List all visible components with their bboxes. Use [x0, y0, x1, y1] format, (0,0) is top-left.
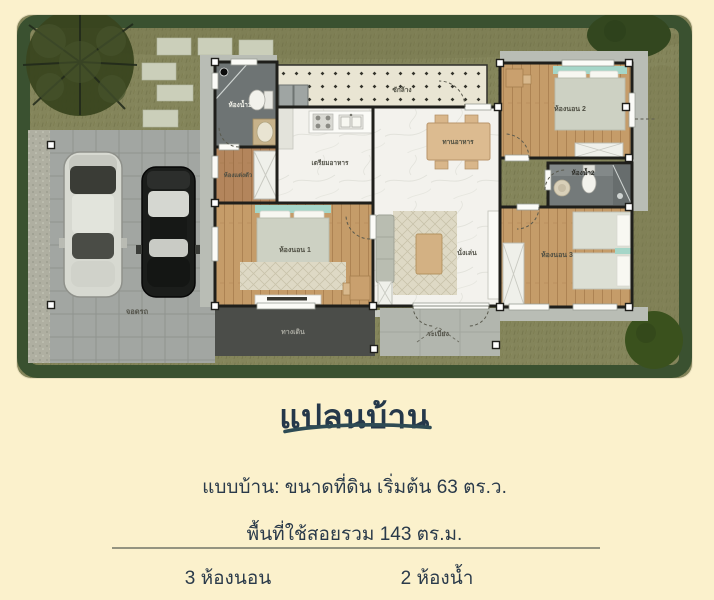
floor-plan-image: ห้องน้ำ1 ห้องแต่งตัว ซักล้าง เตรียมอาหาร…: [17, 15, 692, 378]
label-walkway: ทางเดิน: [281, 328, 305, 336]
label-bedroom-3: ห้องนอน 3: [541, 250, 573, 259]
car-black: [136, 167, 201, 297]
label-laundry: ซักล้าง: [392, 85, 411, 94]
car-silver: [59, 152, 127, 297]
room-bedroom-1: [215, 203, 373, 306]
divider-line: [112, 547, 600, 549]
label-kitchen: เตรียมอาหาร: [311, 159, 349, 167]
usable-area-text: พื้นที่ใช้สอยรวม 143 ตร.ม.: [17, 519, 692, 549]
title-underline: [282, 421, 434, 435]
land-size-text: แบบบ้าน: ขนาดที่ดิน เริ่มต้น 63 ตร.ว.: [17, 472, 692, 502]
bedrooms-count: 3 ห้องนอน: [128, 563, 328, 593]
page: ห้องน้ำ1 ห้องแต่งตัว ซักล้าง เตรียมอาหาร…: [0, 0, 714, 600]
label-terrace: ระเบียง: [427, 330, 449, 338]
label-bedroom-2: ห้องนอน 2: [554, 104, 586, 113]
floor-plan-svg: ห้องน้ำ1 ห้องแต่งตัว ซักล้าง เตรียมอาหาร…: [17, 15, 692, 378]
bathrooms-count: 2 ห้องน้ำ: [337, 563, 537, 593]
label-dining: ทานอาหาร: [442, 139, 474, 146]
label-parking: จอดรถ: [126, 307, 149, 316]
page-title: แปลนบ้าน: [17, 390, 692, 443]
label-bedroom-1: ห้องนอน 1: [279, 245, 311, 254]
label-dressing: ห้องแต่งตัว: [224, 171, 253, 179]
room-kitchen: [277, 107, 373, 203]
laundry-area: [277, 65, 487, 107]
